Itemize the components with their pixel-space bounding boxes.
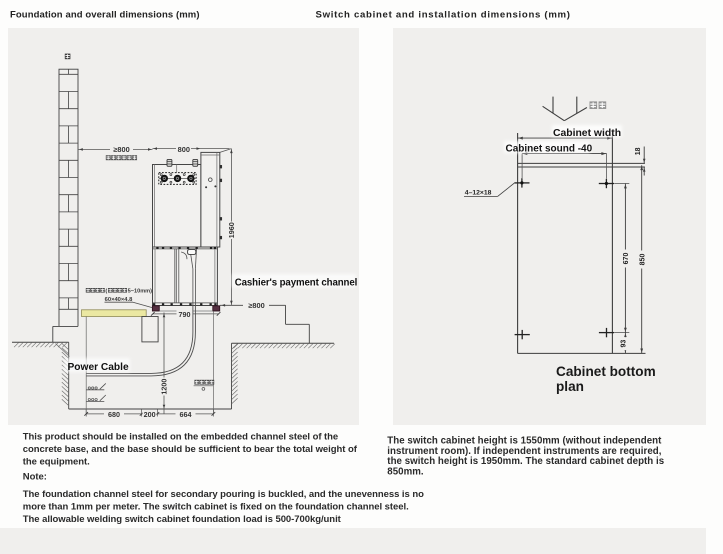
svg-text:790: 790 — [179, 310, 191, 319]
svg-text:Foundation and overall dimensi: Foundation and overall dimensions (mm) — [10, 9, 200, 20]
svg-text:the switch height is 1950mm. T: the switch height is 1950mm. The standar… — [387, 456, 664, 467]
svg-text:Cabinet bottom: Cabinet bottom — [556, 364, 656, 379]
svg-text:concrete base, and the base sh: concrete base, and the base should be su… — [23, 444, 358, 455]
svg-text:The foundation channel steel f: The foundation channel steel for seconda… — [23, 489, 424, 500]
svg-text:800: 800 — [178, 145, 190, 154]
svg-text:850: 850 — [639, 254, 646, 266]
svg-text:93: 93 — [620, 340, 627, 348]
svg-text:≥800: ≥800 — [113, 145, 129, 154]
svg-text:Switch cabinet and installatio: Switch cabinet and installation dimensio… — [316, 9, 571, 20]
svg-text:Cabinet width: Cabinet width — [553, 128, 621, 139]
svg-text:≥800: ≥800 — [248, 301, 264, 310]
svg-text:plan: plan — [556, 379, 584, 394]
svg-text:The allowable welding switch c: The allowable welding switch cabinet fou… — [23, 514, 342, 525]
svg-text:This product should be install: This product should be installed on the … — [23, 431, 338, 442]
svg-text:680: 680 — [108, 410, 120, 419]
svg-text:4–12×18: 4–12×18 — [465, 190, 492, 197]
svg-text:The switch cabinet height is 1: The switch cabinet height is 1550mm (wit… — [387, 435, 662, 446]
svg-text:5~10mm): 5~10mm) — [128, 289, 153, 295]
svg-text:Power Cable: Power Cable — [68, 362, 129, 373]
svg-text:Cabinet sound -40: Cabinet sound -40 — [506, 144, 593, 155]
svg-text:Cashier's payment channel: Cashier's payment channel — [235, 278, 358, 289]
svg-text:instrument room). If independe: instrument room). If independent instrum… — [387, 446, 661, 457]
svg-text:850mm.: 850mm. — [387, 467, 424, 478]
svg-text:200: 200 — [144, 410, 156, 419]
svg-text:the equipment.: the equipment. — [23, 457, 90, 468]
svg-text:more than 1mm per meter. The s: more than 1mm per meter. The switch cabi… — [23, 502, 409, 513]
svg-text:664: 664 — [180, 410, 192, 419]
svg-text:18: 18 — [635, 147, 642, 155]
svg-text:1960: 1960 — [227, 222, 236, 238]
svg-text:670: 670 — [623, 253, 630, 265]
svg-text:1200: 1200 — [159, 379, 168, 395]
svg-text:Note:: Note: — [23, 471, 47, 482]
svg-text:(: ( — [105, 289, 107, 295]
